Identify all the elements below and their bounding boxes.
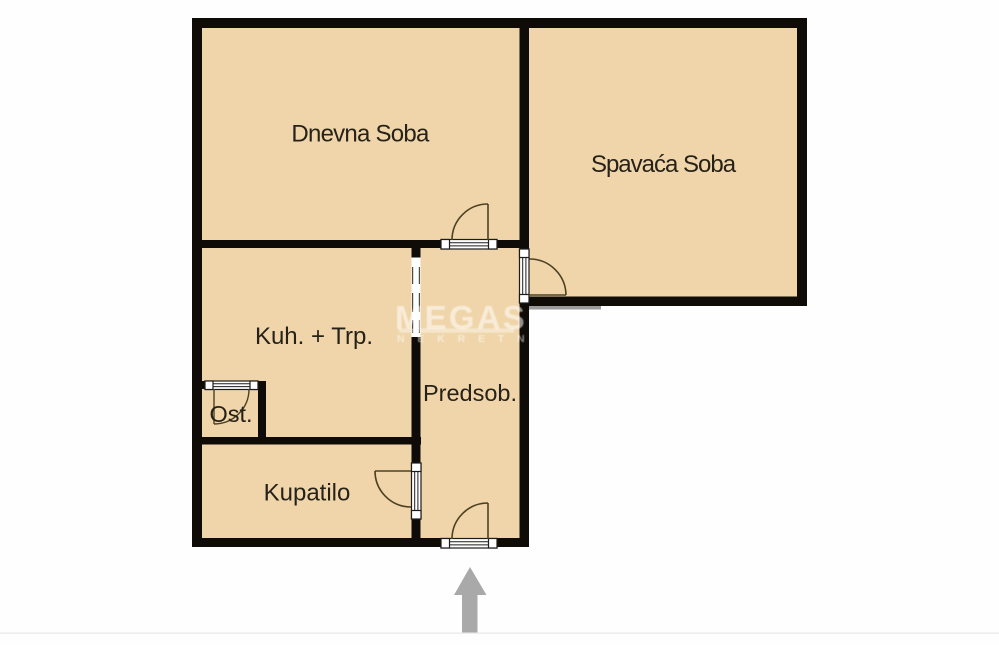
svg-text:NEKRETNINE: NEKRETNINE xyxy=(397,333,593,345)
svg-text:Ost.: Ost. xyxy=(209,401,252,427)
svg-text:Kuh. + Trp.: Kuh. + Trp. xyxy=(255,323,373,350)
svg-text:Dnevna Soba: Dnevna Soba xyxy=(291,121,430,148)
svg-text:Kupatilo: Kupatilo xyxy=(264,480,351,507)
svg-text:Spavaća Soba: Spavaća Soba xyxy=(591,151,737,178)
svg-text:Predsob.: Predsob. xyxy=(423,380,517,406)
